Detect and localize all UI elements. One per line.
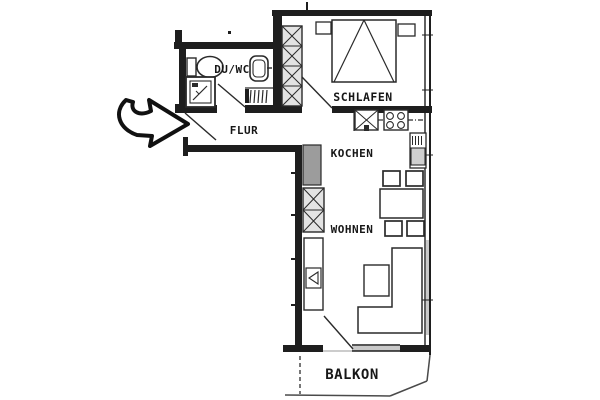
tall-kitchen-unit xyxy=(410,133,426,168)
dining-chair xyxy=(406,171,423,186)
nightstand-left xyxy=(316,22,331,34)
wall-radiator-niche-stub xyxy=(245,89,249,103)
balcony-edge-corner xyxy=(390,381,427,396)
wardrobe xyxy=(282,26,302,106)
floor-plan-drawing: DU/WC SCHLAFEN FLUR KOCHEN WOHNEN BALKON xyxy=(0,0,600,400)
wall-duwc-top-stub xyxy=(175,30,182,42)
dining-chair xyxy=(383,171,400,186)
washbasin xyxy=(250,56,272,81)
bedroom-door-swing xyxy=(302,77,332,108)
floor-plan: DU/WC SCHLAFEN FLUR KOCHEN WOHNEN BALKON xyxy=(0,0,600,400)
wall-hall-south xyxy=(185,145,302,152)
living-furniture xyxy=(303,145,424,333)
room-label-schlafen: SCHLAFEN xyxy=(333,90,392,104)
room-label-wohnen: WOHNEN xyxy=(331,223,374,236)
wall-hall-endcap xyxy=(183,137,188,156)
stove xyxy=(384,110,408,130)
window-balcony xyxy=(323,345,400,351)
wall-dot xyxy=(228,31,231,34)
wall-bottom-left xyxy=(283,345,323,352)
room-label-balkon: BALKON xyxy=(325,367,379,383)
tv xyxy=(306,268,321,288)
radiator xyxy=(245,88,273,103)
room-label-duwc: DU/WC xyxy=(214,63,250,76)
wall-duwc-bottom-right xyxy=(245,105,273,113)
balcony-door-swing xyxy=(324,316,353,349)
balcony-edge-bottom xyxy=(285,395,390,396)
dining-chair xyxy=(385,221,402,236)
room-label-flur: FLUR xyxy=(230,124,259,137)
nightstand-right xyxy=(398,24,415,36)
wall-bedroom-bottom-right xyxy=(332,106,432,113)
door-swings xyxy=(185,77,353,349)
kitchen-counter xyxy=(303,145,321,185)
balcony-edge-right xyxy=(427,355,430,381)
coffee-table xyxy=(364,265,389,296)
kitchen-sink xyxy=(355,110,378,131)
shower-head xyxy=(192,83,198,87)
wall-duwc-left xyxy=(179,49,186,113)
wall-tick-3 xyxy=(291,258,295,260)
dining-table xyxy=(380,189,423,218)
dining-set xyxy=(380,171,424,236)
double-bed xyxy=(332,20,396,82)
room-label-kochen: KOCHEN xyxy=(331,147,374,160)
wall-tick-1 xyxy=(291,172,295,174)
wall-tick-2 xyxy=(291,214,295,216)
wall-bedroom-left xyxy=(273,16,282,106)
faucet xyxy=(364,125,369,131)
wall-duwc-top xyxy=(174,42,273,49)
entrance-door-swing xyxy=(185,113,216,140)
wall-bedroom-bottom-left xyxy=(273,106,302,113)
shower xyxy=(186,77,215,107)
wall-top-tick xyxy=(306,2,308,10)
wall-living-left xyxy=(295,152,302,352)
duwc-door-swing xyxy=(218,84,245,107)
wall-top xyxy=(272,10,432,16)
dining-chair xyxy=(407,221,424,236)
shelf-unit xyxy=(303,188,324,232)
wall-tick-4 xyxy=(291,304,295,306)
